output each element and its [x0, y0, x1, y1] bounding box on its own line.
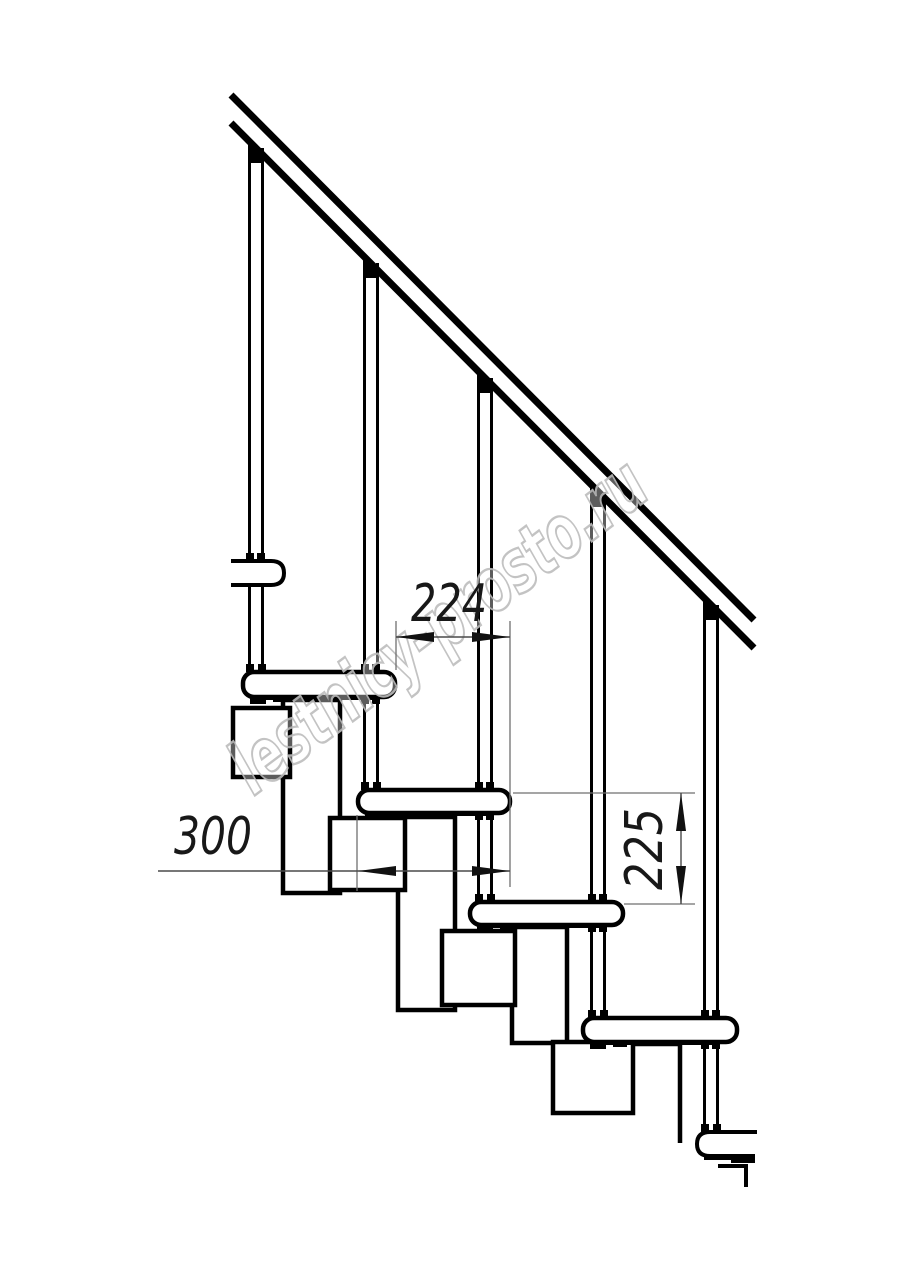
tread-2 [358, 790, 510, 813]
dim-300-label: 300 [174, 807, 252, 867]
baluster-1 [250, 148, 263, 672]
module-box-4 [553, 1042, 633, 1113]
module-4-cut-lines [633, 1042, 680, 1143]
module-box-3 [442, 931, 515, 1005]
module-5-cut-lines [718, 1166, 746, 1187]
baluster-4 [592, 492, 605, 1018]
staircase-drawing: lestnicy-prosto.ru 224 300 225 [0, 0, 914, 1280]
baluster-5 [705, 605, 718, 1132]
tread-4 [583, 1018, 737, 1042]
dim-225-label: 225 [615, 808, 675, 890]
lugs-tread-5 [704, 1154, 755, 1163]
tread-5-partial [697, 1132, 757, 1156]
technical-drawing-page: lestnicy-prosto.ru 224 300 225 [0, 0, 914, 1280]
module-riser-3 [512, 927, 567, 1043]
module-box-2 [330, 818, 405, 890]
arrow-up-icon [676, 793, 686, 831]
arrow-down-icon [676, 866, 686, 904]
tread-0-partial [231, 561, 284, 585]
tread-3 [470, 902, 623, 925]
dim-224-label: 224 [411, 574, 487, 634]
